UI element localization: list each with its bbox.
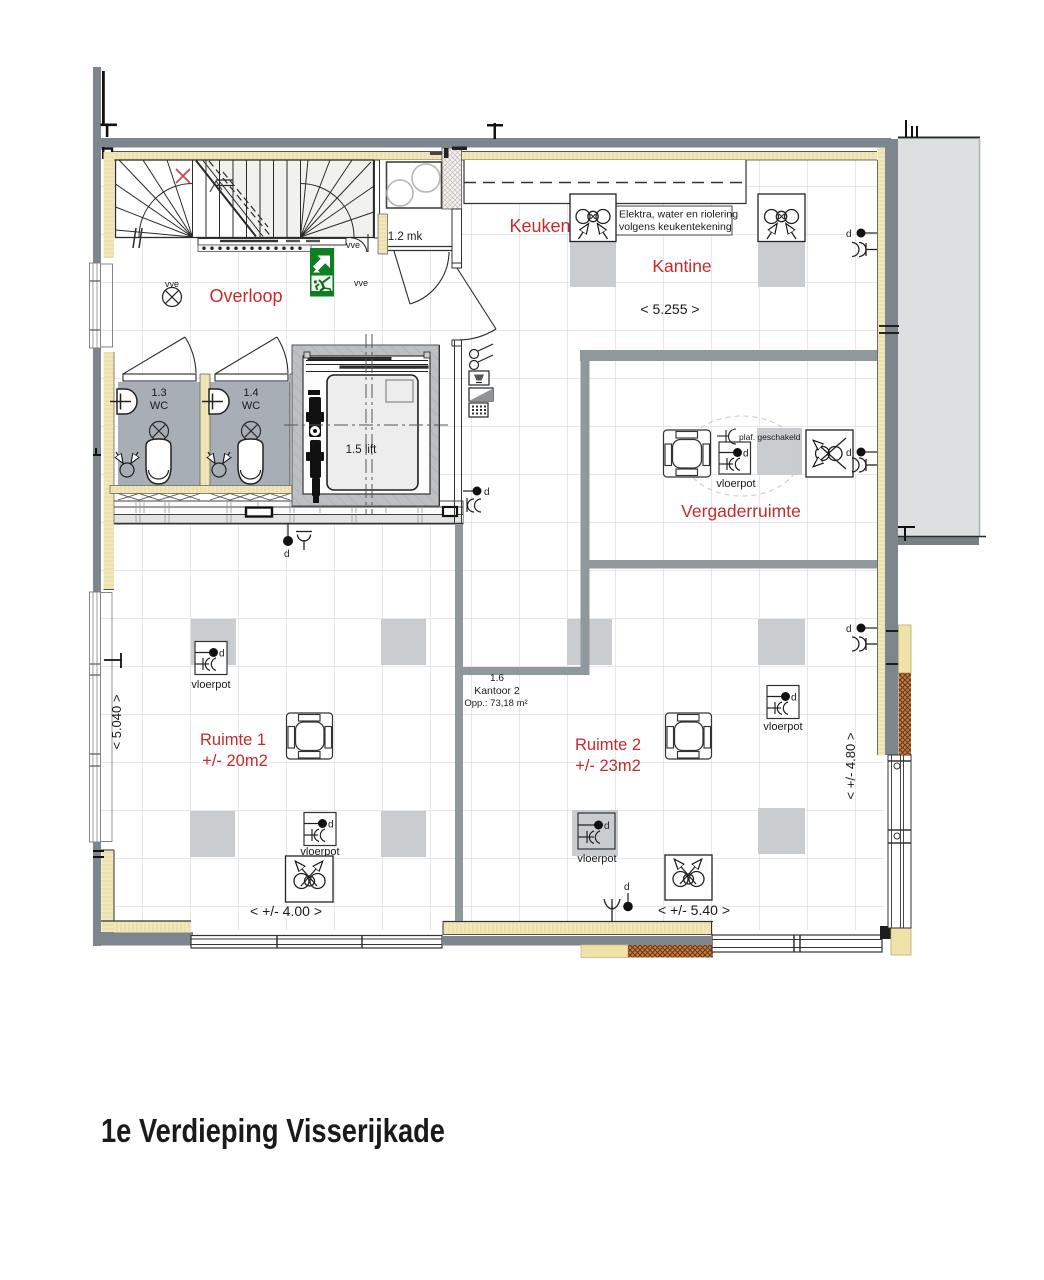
svg-text:< 5.040 >: < 5.040 > <box>109 695 124 750</box>
svg-text:WC: WC <box>242 400 260 412</box>
svg-text:vloerpot: vloerpot <box>191 679 230 691</box>
svg-text:Vergaderruimte: Vergaderruimte <box>681 501 801 521</box>
svg-text:Ruimte 1: Ruimte 1 <box>200 731 266 749</box>
svg-text:volgens keukentekening: volgens keukentekening <box>619 221 732 233</box>
svg-text:d: d <box>846 448 852 459</box>
svg-text:d: d <box>604 821 610 832</box>
svg-text:< +/- 5.40 >: < +/- 5.40 > <box>658 902 730 918</box>
svg-text:d: d <box>791 693 797 704</box>
svg-text:1e Verdieping Visserijkade: 1e Verdieping Visserijkade <box>101 1112 445 1149</box>
svg-text:vve: vve <box>346 240 360 250</box>
svg-text:Opp.: 73,18 m²: Opp.: 73,18 m² <box>464 698 527 709</box>
svg-text:d: d <box>743 449 749 460</box>
svg-text:< +/- 4.00 >: < +/- 4.00 > <box>250 903 322 919</box>
svg-text:1.6: 1.6 <box>490 673 504 684</box>
svg-text:vloerpot: vloerpot <box>577 853 616 865</box>
svg-text:Ruimte 2: Ruimte 2 <box>575 736 641 754</box>
svg-text:1.4: 1.4 <box>243 387 258 399</box>
svg-text:Keuken: Keuken <box>509 216 570 236</box>
svg-text:1.3: 1.3 <box>151 387 166 399</box>
svg-text:d: d <box>846 624 852 635</box>
svg-text:vve: vve <box>354 278 368 288</box>
svg-text:vloerpot: vloerpot <box>763 721 802 733</box>
svg-text:+/- 20m2: +/- 20m2 <box>202 752 268 770</box>
svg-text:d: d <box>328 820 334 831</box>
svg-text:Kantoor 2: Kantoor 2 <box>474 685 520 697</box>
svg-text:Kantine: Kantine <box>652 256 711 276</box>
svg-text:d: d <box>484 487 490 498</box>
svg-text:Overloop: Overloop <box>209 286 282 306</box>
svg-text:d: d <box>219 649 225 660</box>
svg-text:vloerpot: vloerpot <box>716 478 755 490</box>
svg-text:plaf. geschakeld: plaf. geschakeld <box>739 432 801 442</box>
svg-text:vve: vve <box>165 279 179 289</box>
svg-text:< 5.255 >: < 5.255 > <box>640 301 699 317</box>
svg-text:< +/- 4.80 >: < +/- 4.80 > <box>843 733 858 800</box>
svg-text:1.2 mk: 1.2 mk <box>388 231 423 243</box>
svg-text:d: d <box>284 549 290 560</box>
svg-text:+/- 23m2: +/- 23m2 <box>575 757 641 775</box>
svg-text:1.5 lift: 1.5 lift <box>346 444 377 456</box>
svg-text:d: d <box>846 229 852 240</box>
svg-text:d: d <box>624 882 630 893</box>
svg-text:WC: WC <box>150 400 168 412</box>
svg-text:Elektra, water en riolering: Elektra, water en riolering <box>619 209 738 221</box>
